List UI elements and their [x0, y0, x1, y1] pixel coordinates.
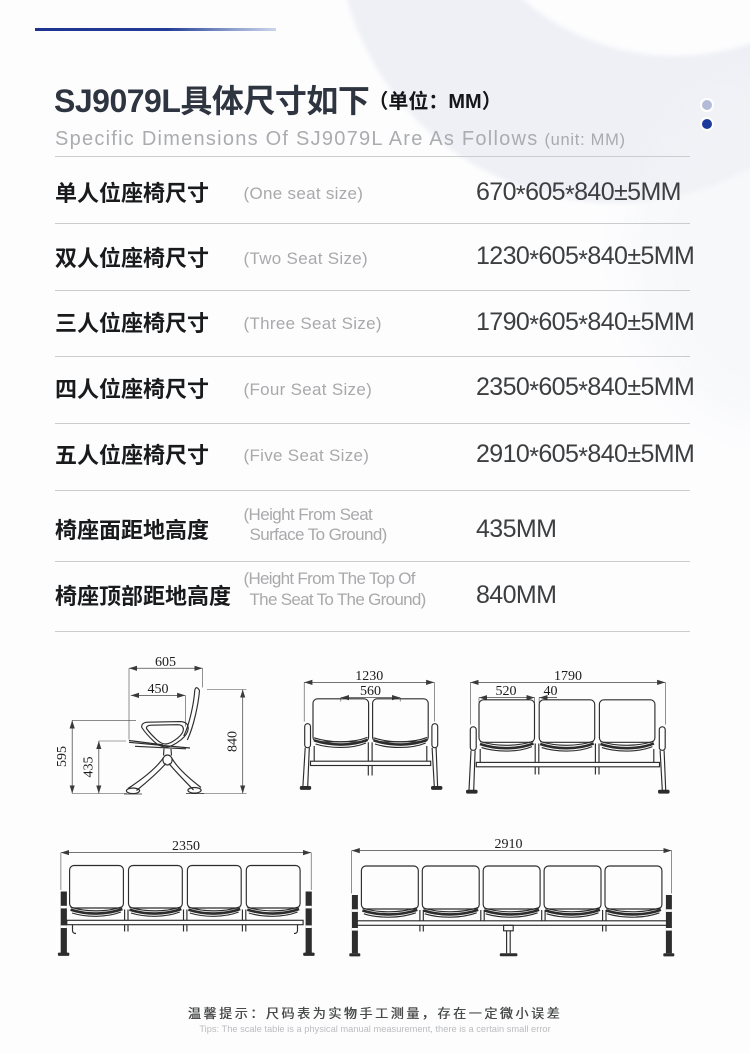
svg-text:40: 40: [544, 684, 558, 699]
svg-text:520: 520: [496, 684, 517, 699]
svg-text:595: 595: [55, 746, 70, 767]
svg-text:1790: 1790: [554, 669, 582, 684]
svg-text:1230: 1230: [355, 669, 383, 684]
svg-text:435: 435: [82, 757, 97, 778]
svg-text:450: 450: [148, 682, 169, 697]
svg-text:840: 840: [226, 731, 241, 752]
svg-text:2350: 2350: [172, 839, 200, 854]
svg-text:605: 605: [155, 655, 176, 670]
svg-text:560: 560: [360, 684, 381, 699]
svg-text:2910: 2910: [495, 837, 523, 852]
